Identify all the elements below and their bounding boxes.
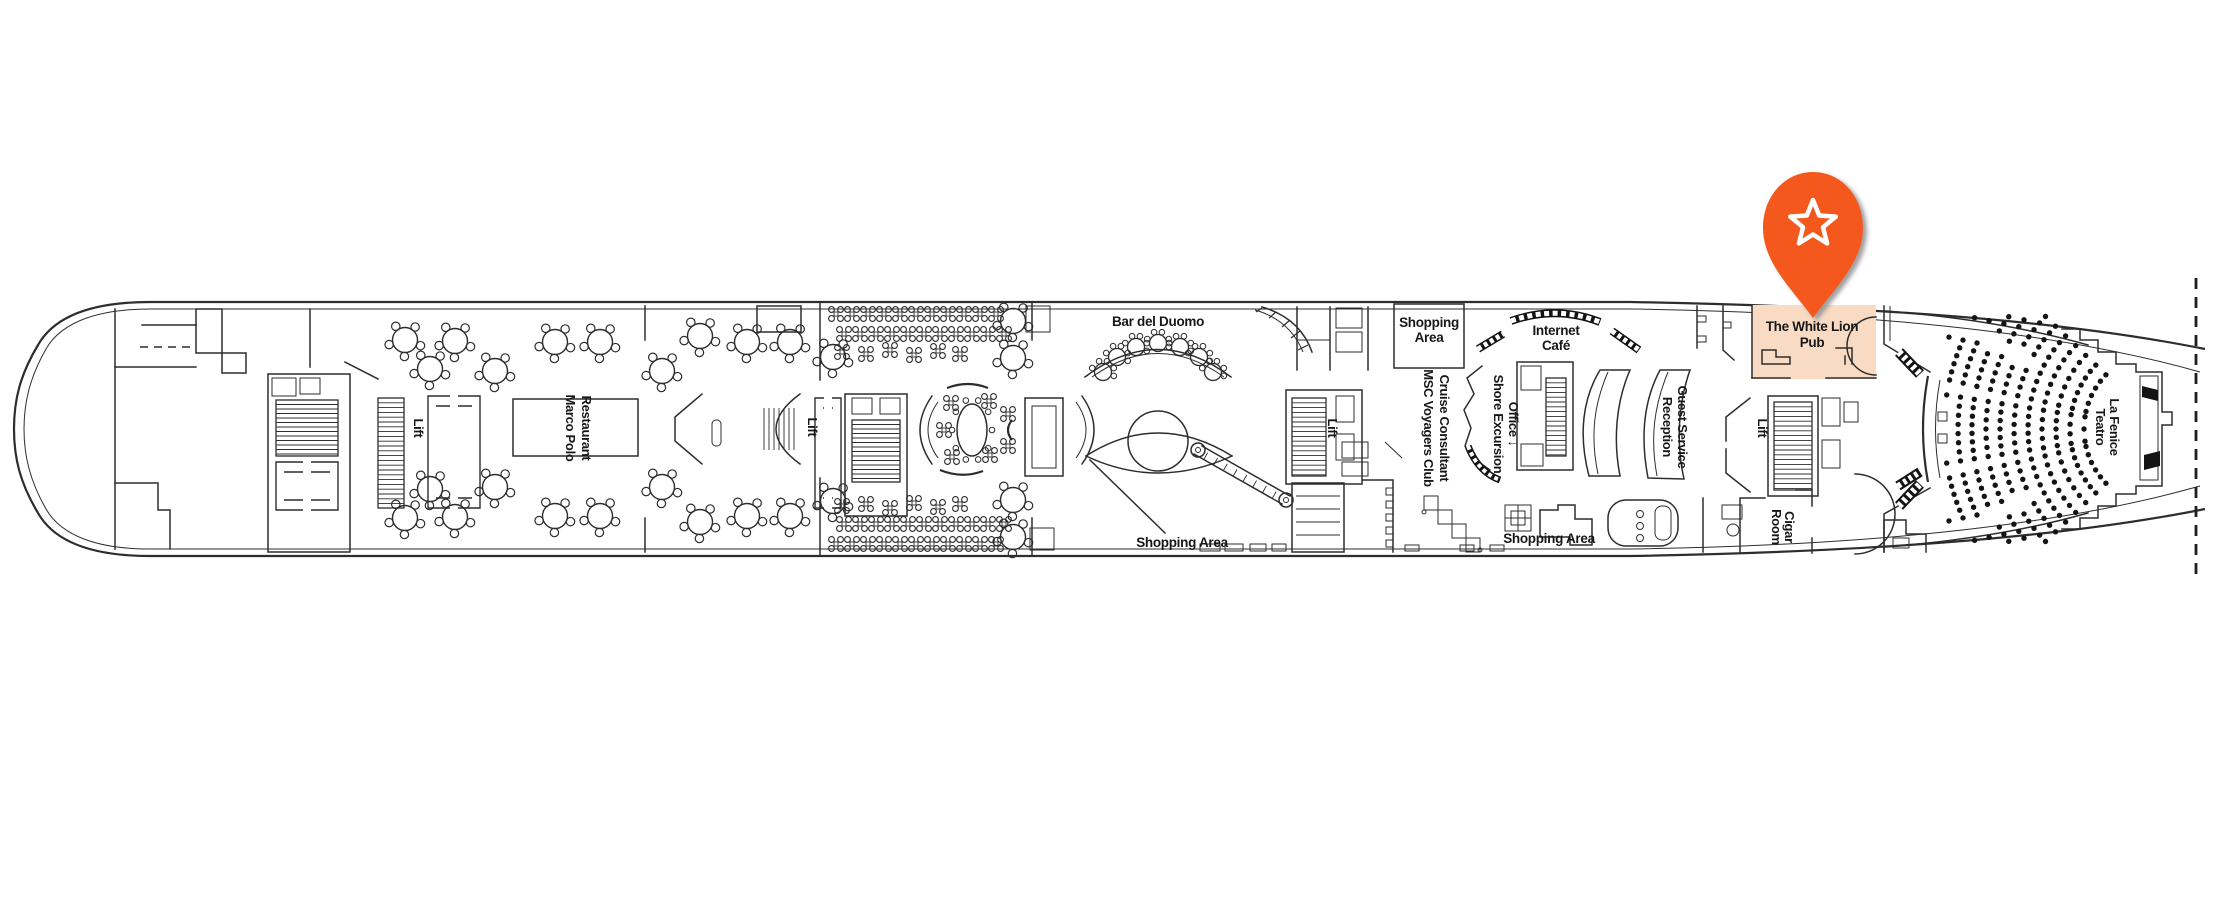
label-bar-del-duomo: Bar del Duomo <box>1112 314 1204 329</box>
lounge-cluster <box>920 384 1015 475</box>
label-white-lion-pub-2: Pub <box>1800 335 1825 350</box>
pin-body[interactable] <box>1763 172 1863 318</box>
deck-plan-canvas: Bar del Duomo Shopping Area Internet Caf… <box>0 0 2220 904</box>
aft-stair-lift-block <box>268 374 480 552</box>
mid-stair-lift <box>1286 390 1362 484</box>
label-shore-excursion-1: Shore Excursion <box>1491 375 1506 474</box>
label-lift-aft: Lift <box>411 418 426 438</box>
label-shopping-area-box-2: Area <box>1415 330 1445 345</box>
label-marco-polo-2: Restaurant <box>579 396 594 462</box>
label-reception-1: Reception <box>1660 397 1675 458</box>
marco-polo-restaurant <box>385 306 810 552</box>
label-teatro-2: La Fenice <box>2107 398 2122 455</box>
escalator <box>1191 443 1293 507</box>
label-reception-2: Guest Service <box>1675 386 1690 469</box>
label-marco-polo-1: Marco Polo <box>563 394 578 461</box>
label-lift-fwd: Lift <box>1755 418 1770 438</box>
deck-plan-svg: Bar del Duomo Shopping Area Internet Caf… <box>0 0 2220 904</box>
label-shopping-area-fwd: Shopping Area <box>1503 531 1595 546</box>
midship-lift-lobby <box>815 394 907 516</box>
duomo-bar-block <box>1025 396 1094 476</box>
cafe-seating-area <box>813 302 1054 558</box>
label-internet-cafe-1: Internet <box>1532 323 1580 338</box>
location-pin[interactable] <box>1763 172 1863 318</box>
label-cruise-consultant-1: Cruise Consultant <box>1437 375 1452 483</box>
label-teatro-1: Teatro <box>2093 409 2108 446</box>
label-white-lion-pub-1: The White Lion <box>1766 319 1859 334</box>
label-lift-shops: Lift <box>1325 418 1340 438</box>
teatro-la-fenice <box>1855 306 2172 554</box>
label-internet-cafe-2: Café <box>1542 338 1571 353</box>
label-shopping-area-mid: Shopping Area <box>1136 535 1228 550</box>
label-lift-mid: Lift <box>805 417 820 437</box>
staircase-steps <box>1422 496 1482 552</box>
label-shore-excursion-2: Office ↓ <box>1506 402 1521 447</box>
label-cigar-room-2: Room <box>1769 509 1784 545</box>
label-shopping-area-box-1: Shopping <box>1399 315 1459 330</box>
bar-del-duomo <box>1085 329 1293 533</box>
label-cruise-consultant-2: MSC Voyagers Club <box>1421 369 1436 487</box>
ship-hull <box>14 278 2205 578</box>
